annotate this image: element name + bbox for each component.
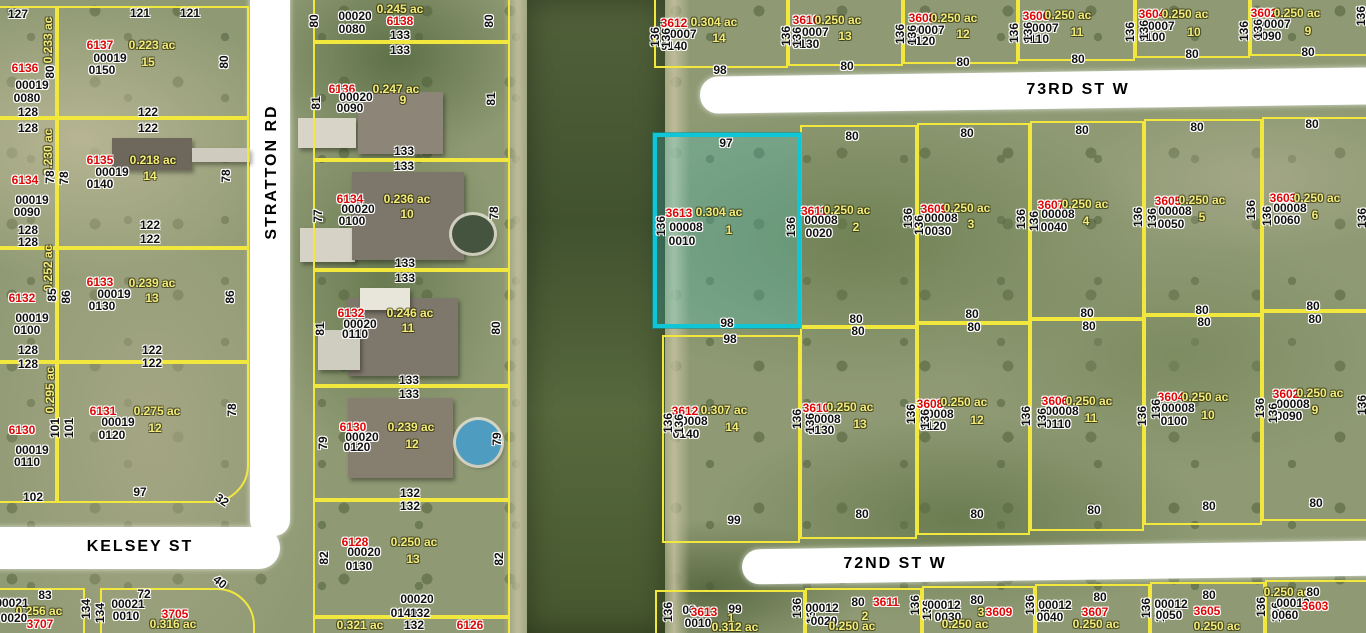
parcel-boundary[interactable] [57, 248, 249, 362]
parcel-boundary[interactable] [903, 0, 1018, 64]
parcel-boundary[interactable] [1150, 582, 1265, 633]
parcel-boundary[interactable] [922, 586, 1035, 633]
parcel-boundary[interactable] [313, 386, 510, 500]
selected-parcel-highlight[interactable] [653, 133, 801, 328]
parcel-boundary[interactable] [313, 160, 510, 270]
parcel-boundary[interactable] [805, 588, 922, 633]
parcel-boundary[interactable] [655, 590, 805, 633]
parcel-boundary[interactable] [1018, 0, 1135, 61]
parcel-boundary[interactable] [1144, 315, 1262, 525]
map-canvas[interactable]: 12761360001900801281280.233 ac8061340001… [0, 0, 1366, 633]
road-kelsey-st [0, 527, 280, 569]
parcel-boundary[interactable] [0, 6, 57, 118]
parcel-boundary[interactable] [800, 327, 917, 539]
parcel-boundary[interactable] [0, 362, 57, 503]
parcel-boundary[interactable] [313, 270, 510, 386]
parcel-boundary[interactable] [1030, 121, 1144, 319]
parcel-boundary[interactable] [1144, 119, 1262, 315]
parcel-boundary[interactable] [313, 617, 510, 633]
parcel-boundary[interactable] [313, 42, 510, 160]
parcel-boundary[interactable] [917, 323, 1030, 535]
parcel-boundary[interactable] [1135, 0, 1250, 58]
parcel-boundary[interactable] [788, 0, 903, 66]
parcel-boundary[interactable] [1035, 584, 1150, 633]
parcel-boundary[interactable] [313, 500, 510, 617]
parcel-boundary[interactable] [57, 6, 249, 118]
parcel-boundary[interactable] [1250, 0, 1366, 56]
parcel-boundary[interactable] [313, 0, 510, 42]
parcel-boundary[interactable] [1030, 319, 1144, 531]
parcel-boundary[interactable] [100, 588, 255, 633]
parcel-boundary[interactable] [917, 123, 1030, 323]
parcel-boundary[interactable] [662, 335, 800, 543]
road-stratton-rd [250, 0, 290, 536]
road-73rd-st-w [700, 67, 1366, 113]
parcel-boundary[interactable] [1262, 117, 1366, 311]
road-72nd-st-w [742, 541, 1366, 585]
parcel-boundary[interactable] [1262, 311, 1366, 521]
parcel-boundary[interactable] [654, 0, 788, 68]
parcel-boundary[interactable] [0, 248, 57, 362]
parcel-boundary[interactable] [57, 362, 249, 503]
parcel-boundary[interactable] [57, 118, 249, 248]
parcel-boundary[interactable] [0, 588, 85, 633]
parcel-boundary[interactable] [0, 118, 57, 248]
parcel-boundary[interactable] [800, 125, 917, 327]
canal [527, 0, 665, 633]
parcel-boundary[interactable] [1265, 580, 1366, 633]
